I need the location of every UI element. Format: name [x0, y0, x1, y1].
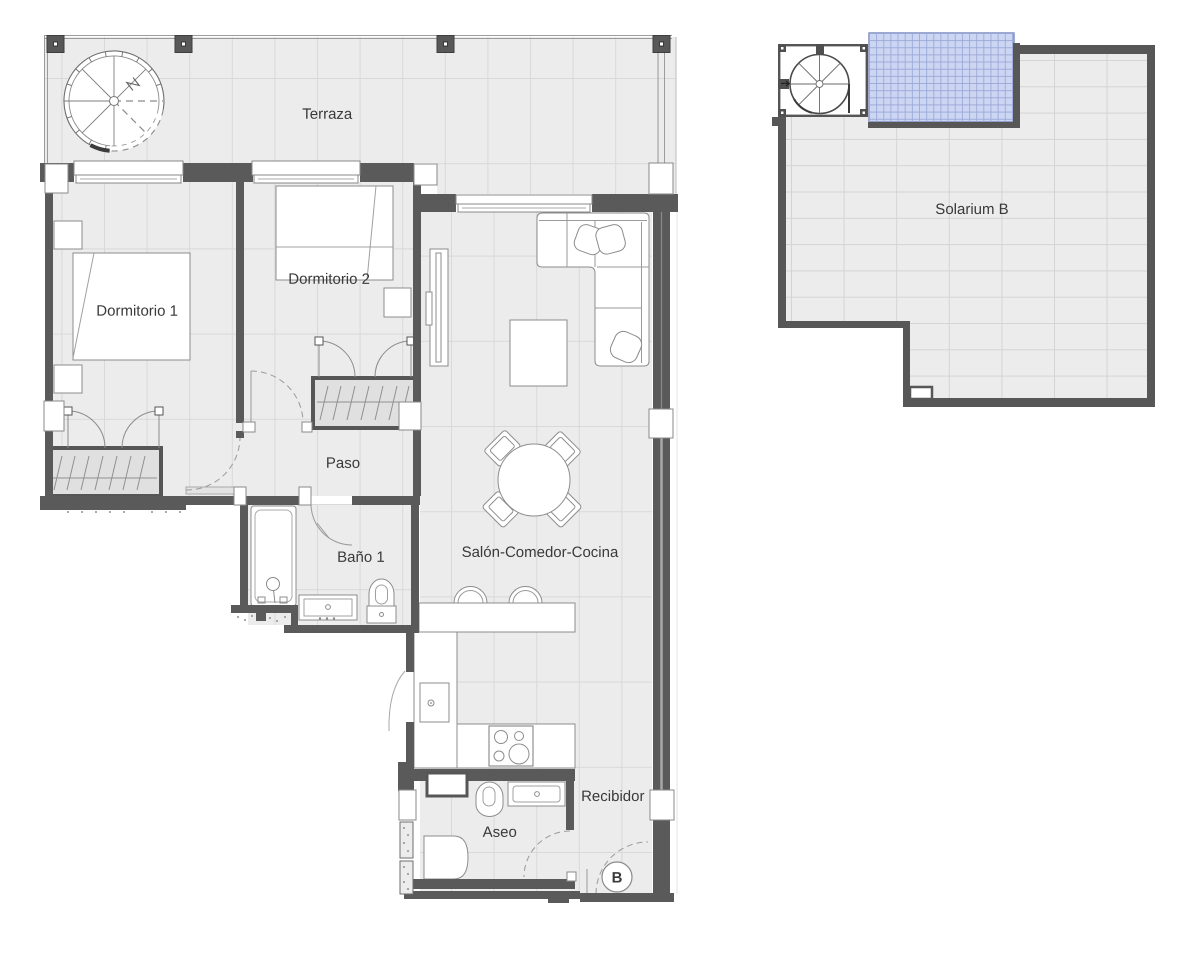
svg-text:Paso: Paso	[326, 455, 360, 472]
svg-text:Aseo: Aseo	[483, 824, 517, 841]
svg-text:Baño 1: Baño 1	[337, 549, 385, 566]
svg-text:Terraza: Terraza	[302, 106, 353, 123]
svg-text:Recibidor: Recibidor	[581, 788, 644, 805]
svg-text:Dormitorio 1: Dormitorio 1	[96, 303, 178, 320]
svg-text:B: B	[612, 869, 623, 886]
svg-text:Dormitorio 2: Dormitorio 2	[288, 271, 370, 288]
svg-text:Solarium B: Solarium B	[935, 201, 1008, 218]
svg-text:Salón-Comedor-Cocina: Salón-Comedor-Cocina	[462, 544, 619, 561]
